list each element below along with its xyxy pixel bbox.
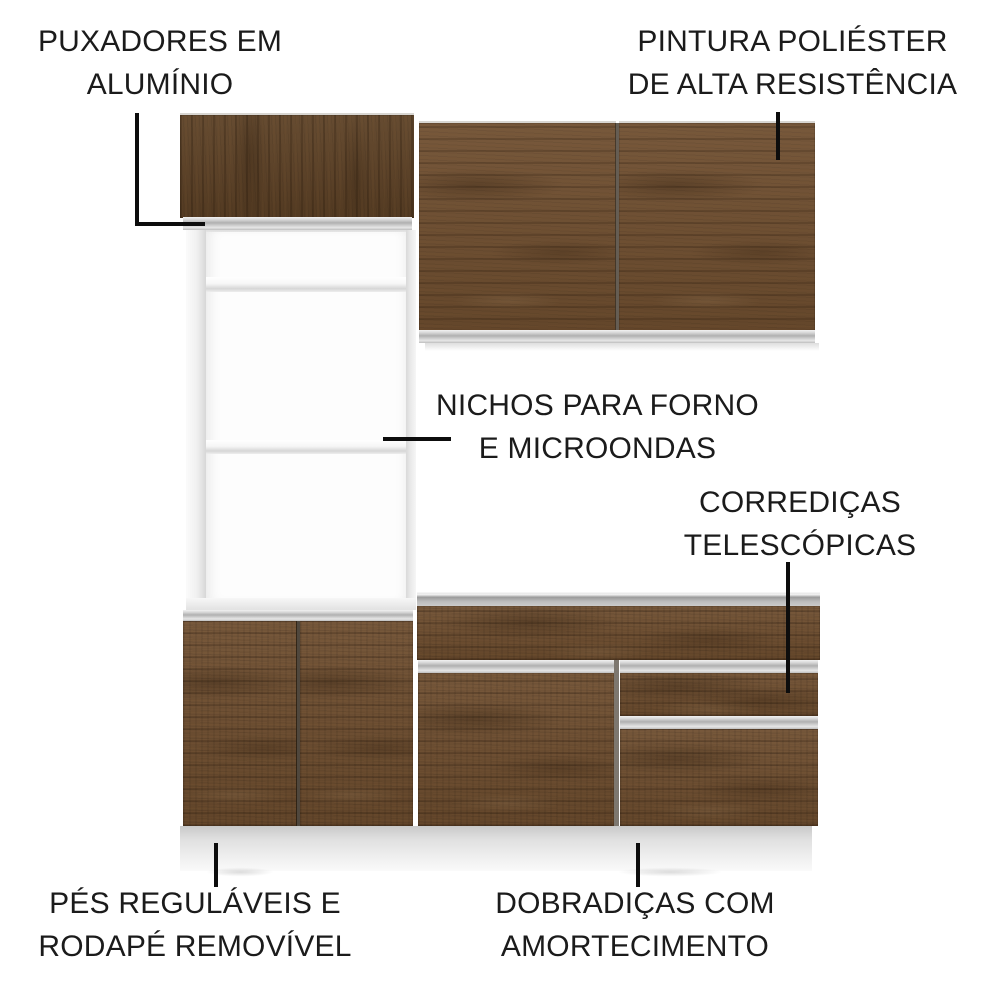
label-feet-line1: PÉS REGULÁVEIS E [15, 882, 375, 925]
tower-bottom-door-right [300, 621, 413, 826]
label-handles-line1: PUXADORES EM [10, 20, 310, 63]
callout-line-handles-vertical [135, 113, 139, 226]
wall-cabinet-strip-shadow [425, 343, 819, 351]
tower-bottom-handle-strip [183, 610, 413, 621]
label-niches-line1: NICHOS PARA FORNO [430, 384, 765, 427]
wall-cabinet-handle-strip [419, 330, 815, 343]
label-slides: CORREDIÇAS TELESCÓPICAS [640, 481, 960, 567]
wall-cabinet-door-left [419, 121, 616, 332]
kitchen-cabinet-diagram: PUXADORES EM ALUMÍNIO PINTURA POLIÉSTER … [0, 0, 1000, 1000]
label-handles-line2: ALUMÍNIO [10, 63, 310, 106]
label-hinges: DOBRADIÇAS COM AMORTECIMENTO [475, 882, 795, 968]
counter-apron [417, 606, 820, 660]
plinth [180, 826, 812, 871]
tower-niche-floor [186, 598, 416, 610]
label-hinges-line1: DOBRADIÇAS COM [475, 882, 795, 925]
label-handles: PUXADORES EM ALUMÍNIO [10, 20, 310, 106]
label-paint: PINTURA POLIÉSTER DE ALTA RESISTÊNCIA [620, 20, 965, 106]
counter-drawer-handle-strip [620, 716, 818, 729]
tower-left-pillar [186, 230, 206, 610]
wall-cabinet-door-gap [615, 123, 619, 330]
counter-drawer-bottom [620, 729, 818, 826]
label-feet: PÉS REGULÁVEIS E RODAPÉ REMOVÍVEL [15, 882, 375, 968]
tower-top-door [180, 113, 414, 218]
callout-line-handles-horizontal [135, 222, 205, 226]
tower-shelf-lower [206, 440, 406, 454]
counter-divider-gap [614, 660, 619, 826]
label-paint-line1: PINTURA POLIÉSTER [620, 20, 965, 63]
tower-right-pillar [406, 230, 416, 610]
label-niches-line2: E MICROONDAS [430, 427, 765, 470]
floor-shadow-right [600, 866, 740, 878]
tower-bottom-door-left [183, 621, 297, 826]
label-niches: NICHOS PARA FORNO E MICROONDAS [430, 384, 765, 470]
wall-cabinet-door-right [619, 121, 815, 332]
callout-line-hinges [636, 843, 640, 887]
label-slides-line2: TELESCÓPICAS [640, 524, 960, 567]
callout-line-paint [776, 112, 780, 160]
callout-line-slides [786, 562, 790, 693]
counter-handle-strip-left [418, 660, 614, 673]
tower-handle-strip [183, 217, 412, 230]
label-paint-line2: DE ALTA RESISTÊNCIA [620, 63, 965, 106]
callout-line-feet [214, 843, 218, 887]
tower-door-gap [296, 621, 300, 826]
tower-shelf-upper [206, 277, 406, 292]
counter-door-left [418, 673, 614, 826]
label-slides-line1: CORREDIÇAS [640, 481, 960, 524]
counter-open-top-rim [417, 592, 820, 607]
label-feet-line2: RODAPÉ REMOVÍVEL [15, 925, 375, 968]
label-hinges-line2: AMORTECIMENTO [475, 925, 795, 968]
floor-shadow-left [195, 866, 285, 878]
